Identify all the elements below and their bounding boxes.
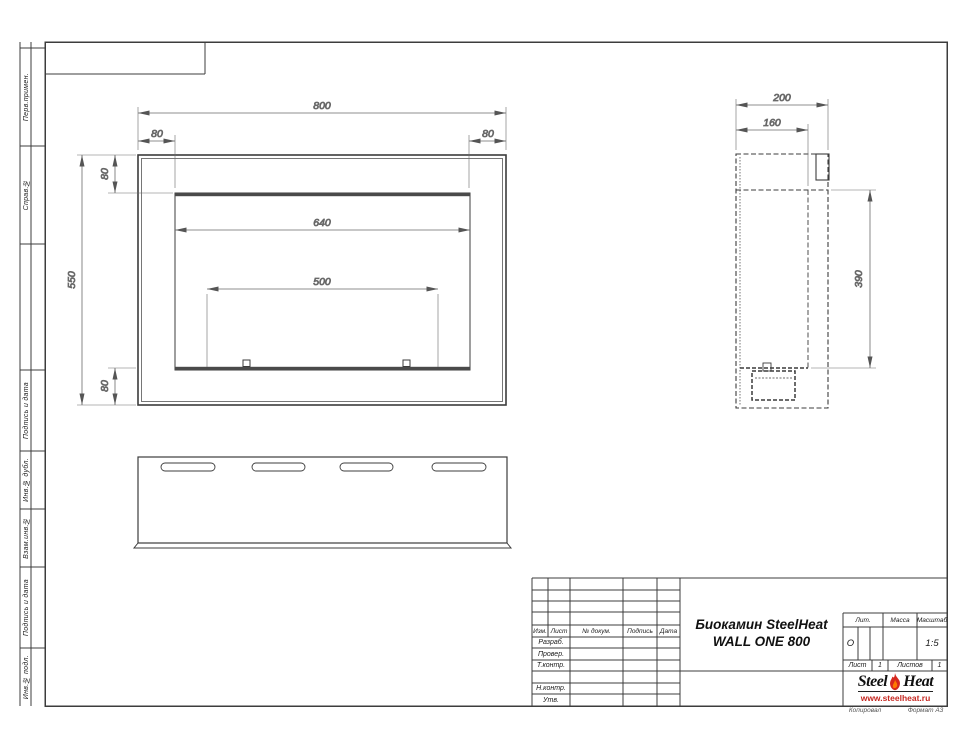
scale-label: Масштаб [917,613,947,627]
dim-front-inset-top: 80 [99,168,111,180]
col-izm: Изм. [532,625,548,637]
sidebar-label: Перв.примен. [23,73,30,121]
sidebar-cell-podpis-data-2: Подпись и дата [20,567,32,648]
sidebar-label: Инв.№ подл. [23,655,30,699]
bottom-view [134,457,511,548]
lit-label: Лит. [843,613,883,627]
dim-front-inset-right: 80 [482,128,494,140]
col-list: Лист [548,625,570,637]
col-data: Дата [657,625,680,637]
side-view [736,154,829,408]
vent-slot [432,463,486,471]
front-dimensions: 800 80 80 80 550 80 640 500 [66,100,506,405]
row-nkontr: Н.контр. [532,683,570,694]
sidebar-cell-sprav-no: Справ.№ [20,146,32,244]
title-line-1: Биокамин SteelHeat [695,616,827,633]
logo-wordmark: Steel Heat [858,673,934,691]
burner-tab [403,360,410,367]
row-utv: Утв. [532,694,570,706]
side-outline [736,154,828,408]
logo-heat-text: Heat [903,673,933,691]
sidebar-label: Подпись и дата [23,579,30,636]
vent-slot [340,463,393,471]
burner-tab [243,360,250,367]
row-prover: Провер. [532,648,570,660]
mount-bracket [816,154,829,180]
side-dimensions: 200 160 390 [736,92,876,368]
col-no-dokum: № докум. [570,625,623,637]
dim-side-depth: 200 [772,92,791,104]
dim-burner-width: 500 [313,276,331,288]
sidebar-label: Инв.№ дубл. [23,458,30,502]
sidebar-label: Справ.№ [23,179,30,210]
dim-side-opening-height: 390 [853,270,865,288]
vent-slot [161,463,215,471]
vent-slot [252,463,305,471]
sidebar-cell-perv-primen: Перв.примен. [20,48,32,146]
footer-format: Формат А3 [898,707,953,714]
col-podpis: Подпись [623,625,657,637]
scale-value: 1:5 [917,627,947,660]
sidebar-cell-inv-dubl: Инв.№ дубл. [20,451,32,509]
sidebar-cell-inv-podl: Инв.№ подл. [20,648,32,706]
burner-tab-side [763,363,771,371]
footer-kopiroval: Копировал [835,707,895,714]
burner-box [752,371,795,400]
row-empty [532,671,570,683]
sidebar-label: Подпись и дата [23,382,30,439]
dim-opening-width: 640 [313,217,331,229]
bottom-outline [138,457,507,543]
dim-front-inset-bottom: 80 [99,380,111,392]
logo-steel-text: Steel [858,673,888,691]
row-razrab: Разраб. [532,637,570,648]
dim-front-width: 800 [313,100,331,112]
dim-front-inset-left: 80 [151,128,163,140]
flame-icon [888,673,902,691]
lit-value: О [843,627,858,660]
sidebar-label: Взам.инв.№ [23,517,30,559]
title-line-2: WALL ONE 800 [713,633,810,650]
logo-website: www.steelheat.ru [858,691,934,703]
company-logo: Steel Heat www.steelheat.ru [844,671,947,705]
mass-label: Масса [883,613,917,627]
sidebar-cell-vzam-inv: Взам.инв.№ [20,509,32,567]
drawing-sheet: 800 80 80 80 550 80 640 500 [0,0,970,749]
dim-side-inner-depth: 160 [763,117,781,129]
document-title: Биокамин SteelHeat WALL ONE 800 [681,600,842,666]
row-tkontr: Т.контр. [532,660,570,671]
sidebar-cell-podpis-data-1: Подпись и дата [20,370,32,451]
dim-front-height: 550 [66,271,78,289]
